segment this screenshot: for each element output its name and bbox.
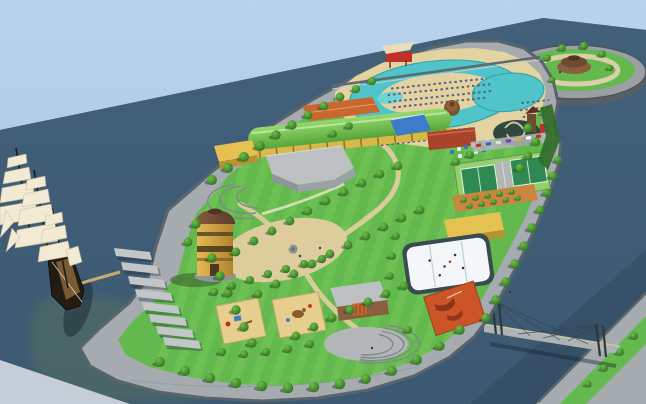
rendered-scene xyxy=(0,0,646,404)
playground-sand-1 xyxy=(216,298,266,344)
play-horse xyxy=(292,310,304,318)
